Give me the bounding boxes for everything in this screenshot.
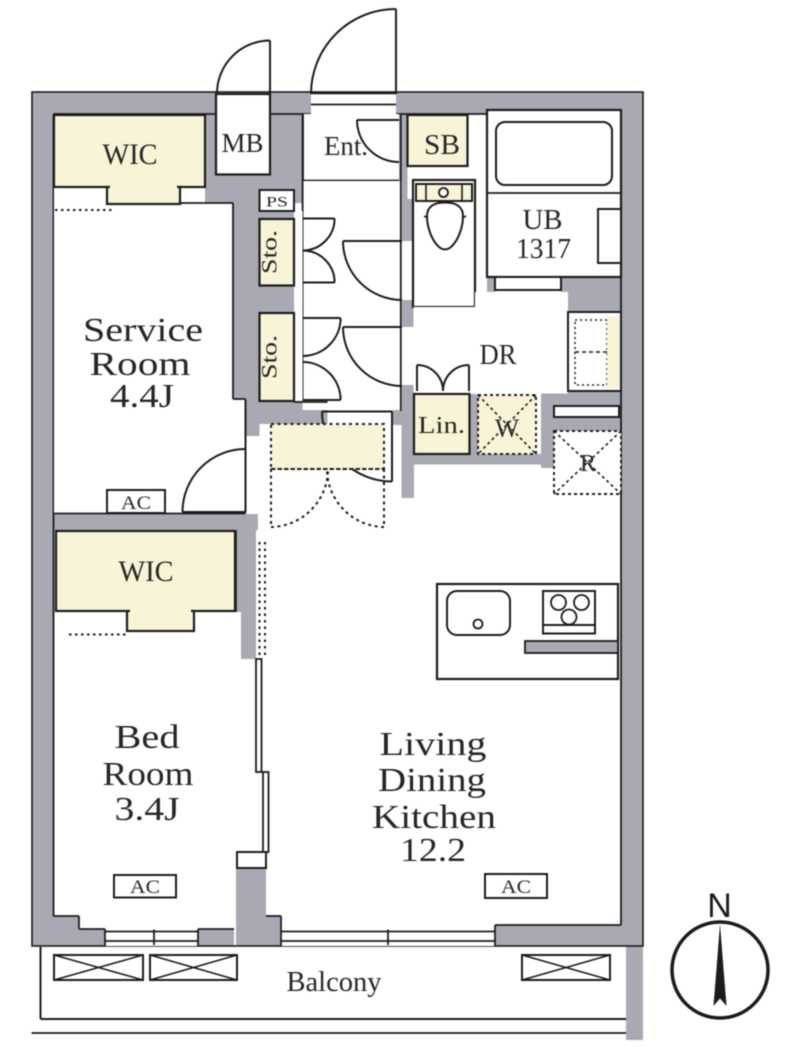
svg-text:Service: Service xyxy=(83,312,203,349)
svg-text:1317: 1317 xyxy=(516,234,571,265)
svg-text:Sto.: Sto. xyxy=(257,230,282,274)
svg-text:Lin.: Lin. xyxy=(418,413,465,439)
svg-text:12.2: 12.2 xyxy=(400,832,466,869)
svg-text:AC: AC xyxy=(121,493,151,514)
svg-text:SB: SB xyxy=(424,130,460,161)
svg-text:MB: MB xyxy=(222,128,264,158)
svg-text:R: R xyxy=(580,451,596,477)
svg-text:N: N xyxy=(707,887,732,925)
svg-text:WIC: WIC xyxy=(119,555,174,588)
svg-text:DR: DR xyxy=(480,340,517,371)
svg-text:AC: AC xyxy=(501,877,531,898)
svg-text:Room: Room xyxy=(103,756,194,793)
svg-text:Kitchen: Kitchen xyxy=(372,799,496,836)
svg-text:UB: UB xyxy=(523,205,563,236)
svg-text:WIC: WIC xyxy=(103,138,158,171)
svg-text:AC: AC xyxy=(130,877,160,898)
svg-text:Dining: Dining xyxy=(378,762,486,799)
svg-text:Balcony: Balcony xyxy=(287,967,382,998)
svg-text:4.4J: 4.4J xyxy=(110,378,174,415)
svg-text:Living: Living xyxy=(380,726,487,763)
svg-text:Ent.: Ent. xyxy=(324,131,368,161)
svg-text:W: W xyxy=(495,414,519,443)
svg-text:Bed: Bed xyxy=(115,719,180,756)
svg-text:3.4J: 3.4J xyxy=(115,791,180,828)
svg-text:Sto.: Sto. xyxy=(257,335,282,379)
svg-text:PS: PS xyxy=(266,195,288,211)
